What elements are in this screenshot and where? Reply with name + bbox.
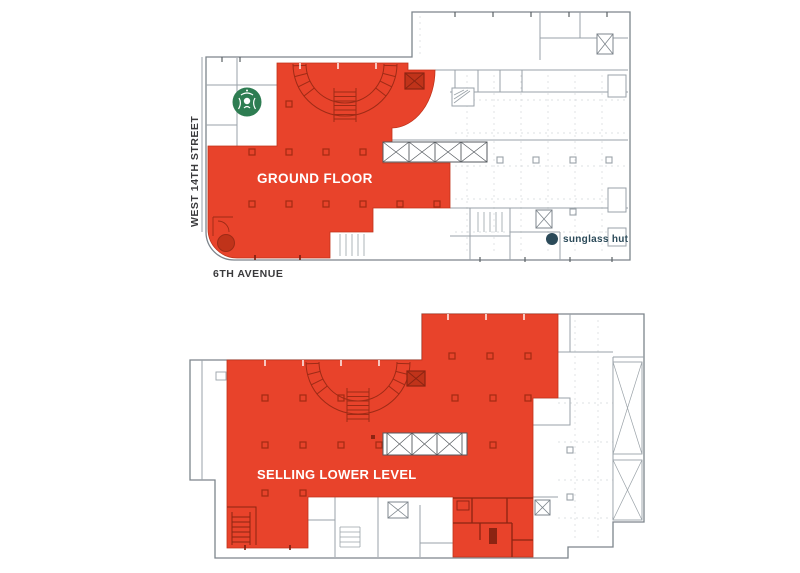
lower-level-label: SELLING LOWER LEVEL bbox=[257, 467, 417, 482]
ground-elevator-bank bbox=[383, 142, 487, 162]
lower-elevator-bank bbox=[383, 433, 467, 455]
sunglass-hut-label: sunglass hut bbox=[563, 234, 628, 245]
lower-level-plan bbox=[190, 314, 644, 558]
ground-floor-plan bbox=[202, 12, 630, 262]
lower-bank-marker bbox=[371, 435, 375, 439]
floor-plan-drawing bbox=[0, 0, 800, 573]
floor-plan-figure: GROUND FLOOR SELLING LOWER LEVEL WEST 14… bbox=[0, 0, 800, 573]
sunglass-hut-logo: sunglass hut bbox=[546, 233, 628, 245]
lower-boh-dark-block bbox=[489, 528, 497, 544]
sunglass-hut-dot-icon bbox=[546, 233, 558, 245]
west-14th-street-label: WEST 14TH STREET bbox=[189, 117, 203, 227]
ground-corner-column bbox=[218, 235, 235, 252]
ground-elevator-box bbox=[405, 73, 424, 89]
ground-floor-label: GROUND FLOOR bbox=[257, 171, 373, 186]
sixth-avenue-label: 6TH AVENUE bbox=[213, 268, 283, 280]
lower-shaft-panels bbox=[613, 362, 642, 520]
lower-meter-box bbox=[216, 372, 226, 380]
starbucks-logo-icon bbox=[233, 88, 262, 117]
lower-elevator-box bbox=[407, 371, 425, 386]
